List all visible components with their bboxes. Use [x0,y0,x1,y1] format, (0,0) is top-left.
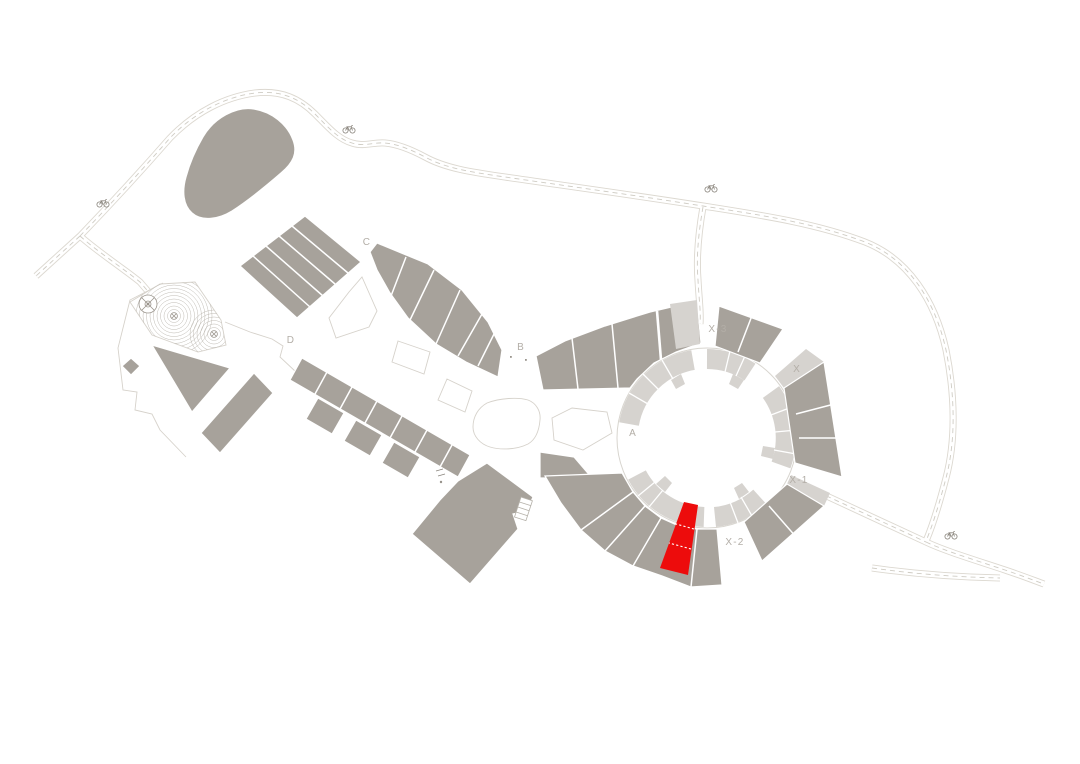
buildings-bottom-center[interactable] [412,452,592,584]
zone-label-x: X [793,364,801,375]
zone-label-x1: X-1 [789,475,808,486]
zone-label-d: D [287,335,295,346]
bicycle-icon [705,185,717,193]
zone-label-x3: X-3 [708,324,727,335]
zone-label-c: C [363,237,371,248]
site-plan-page: A B C D X-3 X X-1 X-2 [0,0,1080,764]
site-plan-svg: A B C D X-3 X X-1 X-2 [0,0,1080,764]
zone-label-x2: X-2 [725,537,744,548]
bollard-dot [510,356,512,358]
stairs-icon [436,469,445,483]
building-triangle [152,345,230,412]
zone-label-a: A [629,428,637,439]
bicycle-icon [343,126,355,134]
building-diamond [122,358,140,375]
zone-label-b: B [517,342,525,353]
carousel-icon [139,295,157,313]
buildings-north-row[interactable] [370,243,502,377]
building-blob [184,109,295,219]
buildings-northwest[interactable] [184,109,361,318]
bollard-dot [525,359,527,361]
bicycle-icon [945,532,957,540]
